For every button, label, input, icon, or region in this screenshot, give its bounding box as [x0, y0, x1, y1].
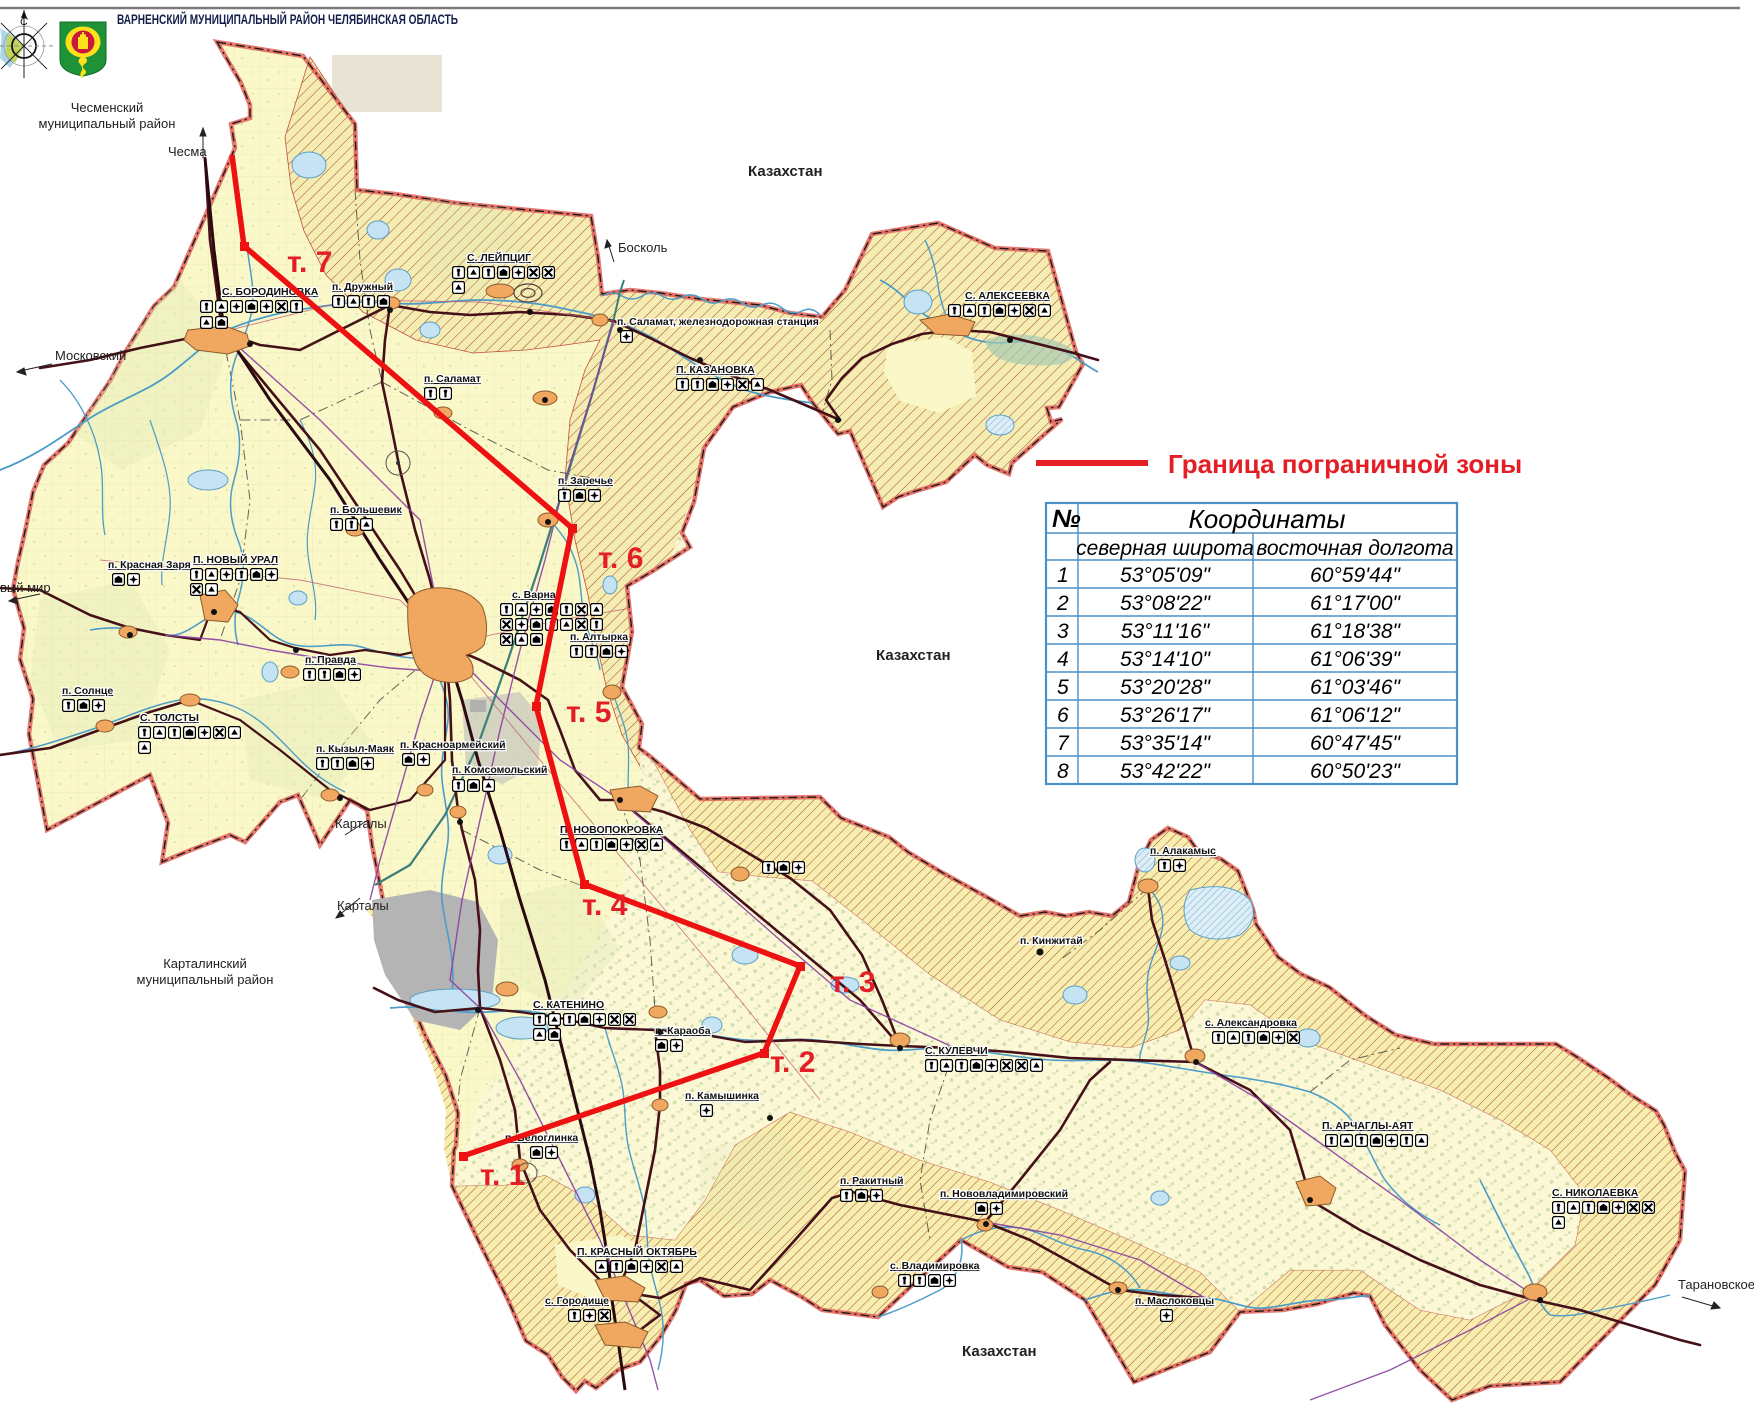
svg-text:Казахстан: Казахстан	[876, 647, 951, 664]
svg-text:п. Ракитный: п. Ракитный	[840, 1175, 904, 1187]
svg-text:60°47'45": 60°47'45"	[1310, 732, 1401, 755]
svg-text:С. ТОЛСТЫ: С. ТОЛСТЫ	[140, 712, 199, 724]
svg-text:восточная долгота: восточная долгота	[1256, 537, 1453, 560]
svg-text:т. 1: т. 1	[480, 1159, 525, 1192]
svg-text:вый мир: вый мир	[0, 580, 51, 595]
svg-text:т. 7: т. 7	[287, 246, 332, 279]
svg-text:61°06'39": 61°06'39"	[1310, 648, 1401, 671]
svg-text:П. КРАСНЫЙ ОКТЯБРЬ: П. КРАСНЫЙ ОКТЯБРЬ	[577, 1245, 697, 1258]
svg-text:С. АЛЕКСЕЕВКА: С. АЛЕКСЕЕВКА	[965, 290, 1050, 302]
svg-text:с. Владимировка: с. Владимировка	[890, 1260, 980, 1272]
svg-text:п. Саламат: п. Саламат	[424, 373, 481, 385]
svg-text:53°08'22": 53°08'22"	[1120, 592, 1211, 615]
svg-text:п. Комсомольский: п. Комсомольский	[452, 764, 548, 776]
svg-text:ВАРНЕНСКИЙ МУНИЦИПАЛЬНЫЙ РАЙОН: ВАРНЕНСКИЙ МУНИЦИПАЛЬНЫЙ РАЙОН ЧЕЛЯБИНСК…	[117, 12, 458, 27]
svg-text:Граница пограничной зоны: Граница пограничной зоны	[1168, 449, 1522, 479]
svg-text:61°17'00": 61°17'00"	[1310, 592, 1401, 615]
svg-text:Чесменский: Чесменский	[71, 100, 143, 115]
svg-text:т. 2: т. 2	[770, 1046, 815, 1079]
svg-text:С. ЛЕЙПЦИГ: С. ЛЕЙПЦИГ	[467, 251, 531, 264]
svg-text:53°26'17": 53°26'17"	[1120, 704, 1211, 727]
svg-text:61°03'46": 61°03'46"	[1310, 676, 1401, 699]
svg-text:С. КУЛЕВЧИ: С. КУЛЕВЧИ	[925, 1045, 988, 1057]
svg-text:п. Правда: п. Правда	[305, 654, 356, 666]
svg-text:7: 7	[1057, 732, 1070, 755]
svg-text:53°11'16": 53°11'16"	[1121, 620, 1211, 643]
svg-text:60°50'23": 60°50'23"	[1310, 760, 1401, 783]
svg-text:№: №	[1052, 505, 1081, 533]
svg-text:п. Саламат, железнодорожная ст: п. Саламат, железнодорожная станция	[617, 316, 819, 328]
svg-text:С: С	[20, 16, 28, 28]
svg-text:п. Кызыл-Маяк: п. Кызыл-Маяк	[316, 743, 395, 755]
svg-text:т. 4: т. 4	[582, 889, 628, 922]
svg-text:П. АРЧАГЛЫ-АЯТ: П. АРЧАГЛЫ-АЯТ	[1322, 1120, 1414, 1132]
svg-text:53°14'10": 53°14'10"	[1120, 648, 1211, 671]
svg-text:Казахстан: Казахстан	[748, 163, 823, 180]
svg-text:П. НОВЫЙ УРАЛ: П. НОВЫЙ УРАЛ	[193, 553, 278, 566]
svg-text:п. Маслоковцы: п. Маслоковцы	[1135, 1295, 1214, 1307]
svg-text:1: 1	[1057, 564, 1069, 587]
svg-text:2: 2	[1056, 592, 1069, 615]
svg-text:п. Камышинка: п. Камышинка	[685, 1090, 759, 1102]
svg-text:5: 5	[1057, 676, 1069, 699]
svg-text:Чесма: Чесма	[168, 144, 207, 159]
svg-text:п. Заречье: п. Заречье	[558, 475, 613, 487]
svg-text:С. КАТЕНИНО: С. КАТЕНИНО	[533, 999, 604, 1011]
svg-text:п. Кинжитай: п. Кинжитай	[1020, 935, 1083, 947]
svg-text:Казахстан: Казахстан	[962, 1343, 1037, 1360]
svg-text:П. КАЗАНОВКА: П. КАЗАНОВКА	[676, 364, 755, 376]
svg-text:8: 8	[1057, 760, 1069, 783]
svg-text:61°18'38": 61°18'38"	[1310, 620, 1401, 643]
svg-text:Московский: Московский	[55, 348, 126, 363]
svg-text:53°35'14": 53°35'14"	[1120, 732, 1211, 755]
svg-text:Координаты: Координаты	[1188, 504, 1345, 534]
svg-text:с. Варна: с. Варна	[512, 589, 556, 601]
svg-text:53°20'28": 53°20'28"	[1120, 676, 1211, 699]
svg-text:п. Солнце: п. Солнце	[62, 685, 113, 697]
svg-text:с. Городище: с. Городище	[545, 1295, 609, 1307]
svg-text:53°42'22": 53°42'22"	[1120, 760, 1211, 783]
svg-text:Босколь: Босколь	[618, 240, 668, 255]
svg-text:п. Караоба: п. Караоба	[655, 1025, 711, 1037]
svg-text:п. Красноармейский: п. Красноармейский	[400, 739, 506, 751]
svg-text:муниципальный район: муниципальный район	[137, 972, 274, 987]
svg-text:п. Большевик: п. Большевик	[330, 504, 403, 516]
svg-text:3: 3	[1057, 620, 1069, 643]
svg-text:60°59'44": 60°59'44"	[1310, 564, 1401, 587]
svg-text:п. Дружный: п. Дружный	[332, 281, 393, 293]
svg-text:4: 4	[1057, 648, 1069, 671]
svg-text:Тарановское: Тарановское	[1678, 1277, 1754, 1292]
svg-text:северная широта: северная широта	[1076, 537, 1254, 560]
svg-text:муниципальный район: муниципальный район	[39, 116, 176, 131]
svg-text:П. НОВОПОКРОВКА: П. НОВОПОКРОВКА	[560, 824, 664, 836]
svg-text:т. 6: т. 6	[598, 542, 643, 575]
svg-text:6: 6	[1057, 704, 1069, 727]
svg-text:п. Алакамыс: п. Алакамыс	[1150, 845, 1216, 857]
svg-text:т. 5: т. 5	[566, 696, 611, 729]
svg-text:т. 3: т. 3	[830, 966, 875, 999]
svg-text:Карталинский: Карталинский	[163, 956, 247, 971]
svg-text:п. Нововладимировский: п. Нововладимировский	[940, 1188, 1068, 1200]
svg-text:53°05'09": 53°05'09"	[1120, 564, 1211, 587]
svg-text:с. Александровка: с. Александровка	[1205, 1017, 1297, 1029]
svg-text:Карталы: Карталы	[335, 816, 387, 831]
svg-text:п. Красная Заря: п. Красная Заря	[108, 559, 191, 571]
svg-text:С. НИКОЛАЕВКА: С. НИКОЛАЕВКА	[1552, 1187, 1639, 1199]
svg-text:п. Алтырка: п. Алтырка	[570, 631, 628, 643]
svg-text:61°06'12": 61°06'12"	[1310, 704, 1401, 727]
